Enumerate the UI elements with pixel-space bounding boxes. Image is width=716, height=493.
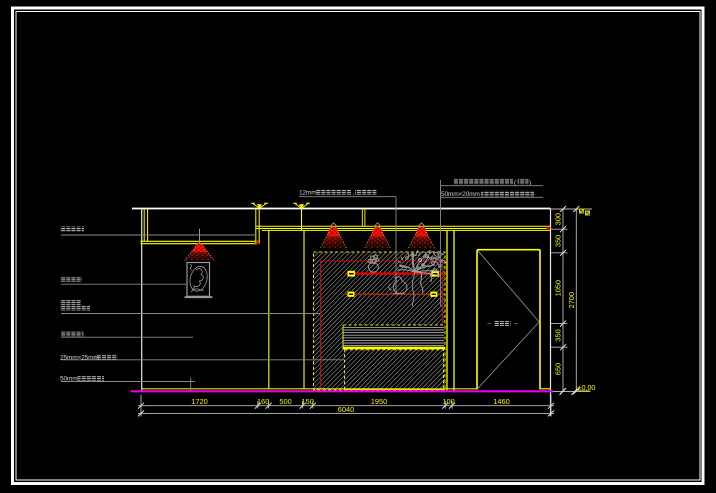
svg-text:1950: 1950: [371, 397, 387, 406]
svg-text:1720: 1720: [191, 397, 207, 406]
svg-text:25mm×25mm: 25mm×25mm: [60, 354, 99, 361]
svg-text:350: 350: [554, 235, 563, 247]
svg-text:1050: 1050: [554, 280, 563, 296]
svg-text:150: 150: [302, 397, 314, 406]
svg-text:650: 650: [554, 363, 563, 375]
svg-text:160: 160: [257, 397, 269, 406]
svg-text:~: ~: [514, 321, 518, 328]
svg-text:100: 100: [442, 397, 454, 406]
svg-text:~: ~: [487, 321, 491, 328]
svg-text:6040: 6040: [338, 405, 354, 414]
svg-text:350: 350: [554, 329, 563, 341]
svg-text:50mm: 50mm: [60, 376, 78, 383]
svg-text:300: 300: [554, 213, 563, 225]
svg-text:500: 500: [279, 397, 291, 406]
svg-text:2700: 2700: [567, 292, 576, 308]
svg-text:,: ,: [353, 190, 355, 197]
svg-text:12mm: 12mm: [299, 190, 317, 197]
svg-text:1460: 1460: [493, 397, 509, 406]
